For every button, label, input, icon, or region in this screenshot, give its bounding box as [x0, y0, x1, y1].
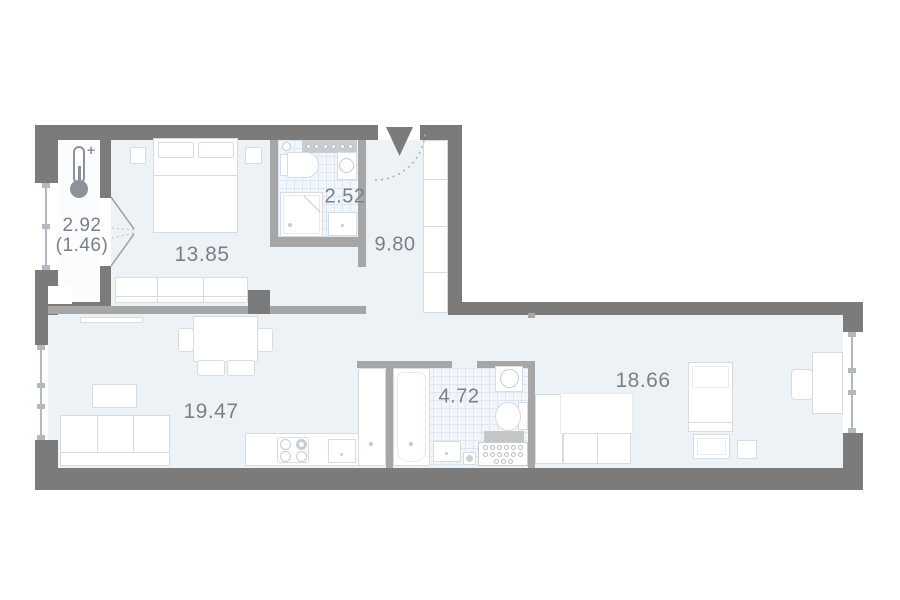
- window-glass-line: [851, 332, 853, 433]
- cabinet-divider: [597, 433, 598, 464]
- wall-bath-large-right: [528, 361, 535, 468]
- nightstand: [737, 440, 757, 459]
- wall-left-step: [35, 315, 48, 345]
- pillow: [158, 142, 194, 158]
- window-tick: [37, 435, 45, 440]
- wardrobe-divider: [423, 272, 448, 273]
- radiator-cap: [484, 431, 524, 442]
- window-tick: [848, 368, 856, 373]
- window-tick: [42, 265, 50, 270]
- wall-right-upper: [843, 315, 863, 332]
- wall-tick: [528, 313, 535, 318]
- room-label-bathroom-large: 4.72: [439, 386, 480, 409]
- toilet-icon: [287, 152, 319, 178]
- wardrobe-divider: [423, 226, 448, 227]
- wall-mid-horizontal: [448, 302, 863, 315]
- washer-drum: [339, 158, 354, 173]
- wall-bath-small-left: [270, 140, 278, 247]
- cabinet-handle: [369, 442, 373, 446]
- shower-drain: [288, 223, 292, 227]
- dresser-divider: [157, 277, 158, 303]
- wall-left-lower: [35, 440, 58, 468]
- thermometer-bulb: [70, 180, 88, 198]
- wall-bath-large-left: [386, 361, 393, 468]
- dresser: [115, 277, 248, 303]
- wall-bath-small-bottom: [270, 237, 366, 247]
- window-tick: [42, 224, 50, 229]
- room-label-bedroom-second: 18.66: [615, 369, 670, 393]
- window-tick: [848, 428, 856, 433]
- room-label-bedroom: 13.85: [174, 243, 229, 267]
- pillow: [692, 366, 729, 388]
- wall-niche: [48, 286, 72, 304]
- dresser-divider: [203, 277, 204, 303]
- window-tick: [37, 345, 45, 350]
- ceiling-light-icon: [282, 142, 291, 151]
- desk-chair: [791, 369, 813, 400]
- room-label-bathroom-small: 2.52: [325, 186, 366, 209]
- sofa-cushion-divider: [97, 415, 98, 452]
- sink-drain: [340, 453, 343, 456]
- dining-table: [193, 316, 258, 362]
- floor-plan: + 2.92 (1.46) 13.85 2.52 9.80 19.47 4.72…: [0, 0, 900, 600]
- room-label-balcony: 2.92: [63, 215, 102, 237]
- room-label-balcony-reduced: (1.46): [56, 235, 109, 257]
- burner: [280, 451, 291, 462]
- heated-rack: [478, 442, 528, 466]
- thermometer-icon: +: [62, 142, 102, 204]
- wall-bedroom-bottom-right: [270, 306, 366, 314]
- sink-drain: [341, 224, 344, 227]
- overhead-cabinet: [560, 393, 633, 434]
- room-label-hallway: 9.80: [375, 234, 416, 257]
- blanket-line: [153, 175, 238, 176]
- burner: [296, 451, 307, 462]
- wall-balcony-bottom: [100, 266, 111, 302]
- wall-pillar: [248, 290, 270, 314]
- wall-left-upper: [35, 140, 58, 183]
- dresser-front-line: [115, 296, 248, 297]
- washer-drum: [500, 369, 519, 388]
- wall-hall-right: [448, 125, 462, 315]
- sofa-cushion-divider: [133, 415, 134, 452]
- chair: [257, 328, 273, 352]
- kitchen-sink-icon: [328, 439, 356, 463]
- floor-drain: [466, 455, 473, 462]
- burner: [280, 439, 291, 450]
- chair: [178, 328, 194, 352]
- bathtub-inner: [397, 372, 426, 462]
- desk: [812, 352, 843, 414]
- window-tick: [37, 404, 45, 409]
- room-label-living-kitchen: 19.47: [183, 400, 238, 424]
- burner: [296, 439, 307, 450]
- toilet-icon: [495, 402, 521, 431]
- wardrobe-divider: [423, 179, 448, 180]
- window-glass-line: [40, 345, 42, 440]
- shower-tray-inner: [283, 195, 320, 234]
- wall-bath-large-top-a: [357, 361, 452, 368]
- wardrobe-tall: [535, 394, 563, 464]
- sofa-seat-line: [60, 452, 170, 453]
- sink-drain: [445, 452, 448, 455]
- coffee-table: [92, 384, 137, 408]
- window-tick: [848, 390, 856, 395]
- plus-sign: +: [87, 142, 95, 158]
- wall-bedroom-bottom-left: [48, 306, 248, 314]
- wall-bottom: [35, 468, 863, 490]
- bedroom-floor-lower: [270, 247, 358, 306]
- nightstand: [130, 147, 146, 164]
- chair: [227, 360, 255, 376]
- wall-right-lower: [843, 433, 863, 468]
- bathtub-drain: [409, 442, 413, 446]
- tall-cabinet: [358, 368, 386, 466]
- bedroom-door-opening: [358, 267, 366, 306]
- storage-bench-inner: [697, 438, 726, 455]
- window-tick: [848, 332, 856, 337]
- footboard-line: [688, 422, 733, 423]
- pillow: [198, 142, 234, 158]
- window-tick: [42, 183, 50, 188]
- sofa: [60, 415, 170, 466]
- wall-stub: [358, 247, 366, 267]
- chair: [197, 360, 225, 376]
- nightstand: [245, 147, 262, 164]
- radiator-coil: [306, 144, 311, 149]
- window-tick: [37, 383, 45, 388]
- window-bedroom2: [843, 332, 863, 433]
- tv-console: [80, 317, 143, 323]
